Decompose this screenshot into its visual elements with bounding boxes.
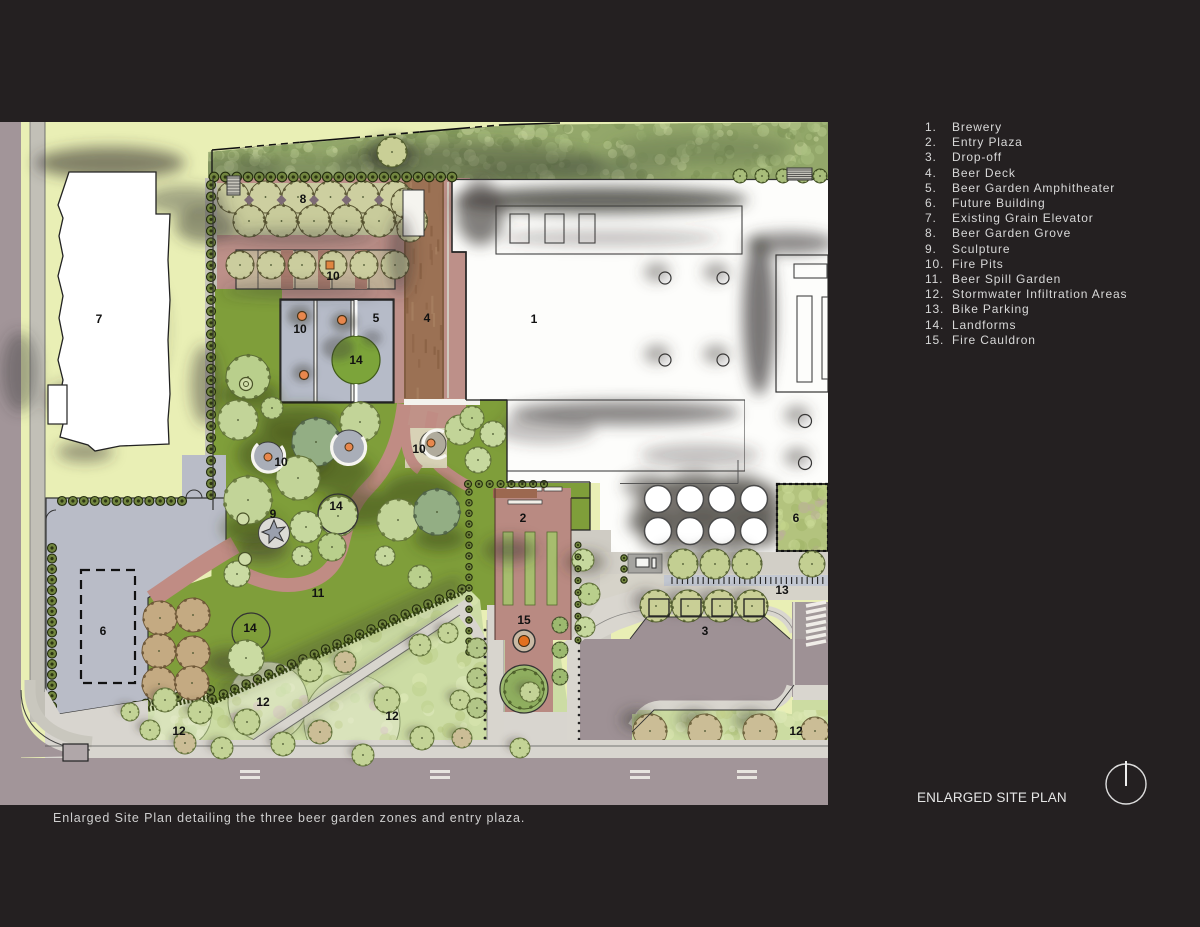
svg-text:12: 12 bbox=[789, 724, 803, 738]
svg-text:10: 10 bbox=[326, 269, 340, 283]
svg-text:6: 6 bbox=[793, 511, 800, 525]
svg-text:3: 3 bbox=[702, 624, 709, 638]
svg-text:12: 12 bbox=[385, 709, 399, 723]
svg-text:6: 6 bbox=[100, 624, 107, 638]
svg-text:14: 14 bbox=[243, 621, 257, 635]
svg-text:14: 14 bbox=[329, 499, 343, 513]
svg-text:13: 13 bbox=[775, 583, 789, 597]
svg-text:8: 8 bbox=[300, 192, 307, 206]
svg-text:7: 7 bbox=[96, 312, 103, 326]
svg-text:15: 15 bbox=[517, 613, 531, 627]
svg-text:2: 2 bbox=[520, 511, 527, 525]
svg-text:4: 4 bbox=[424, 311, 431, 325]
svg-text:5: 5 bbox=[373, 311, 380, 325]
svg-text:14: 14 bbox=[349, 353, 363, 367]
svg-text:10: 10 bbox=[274, 455, 288, 469]
svg-text:12: 12 bbox=[172, 724, 186, 738]
svg-text:1: 1 bbox=[531, 312, 538, 326]
svg-text:11: 11 bbox=[312, 586, 325, 600]
svg-text:10: 10 bbox=[293, 322, 307, 336]
svg-text:12: 12 bbox=[256, 695, 270, 709]
svg-text:10: 10 bbox=[412, 442, 426, 456]
svg-text:9: 9 bbox=[270, 507, 277, 521]
